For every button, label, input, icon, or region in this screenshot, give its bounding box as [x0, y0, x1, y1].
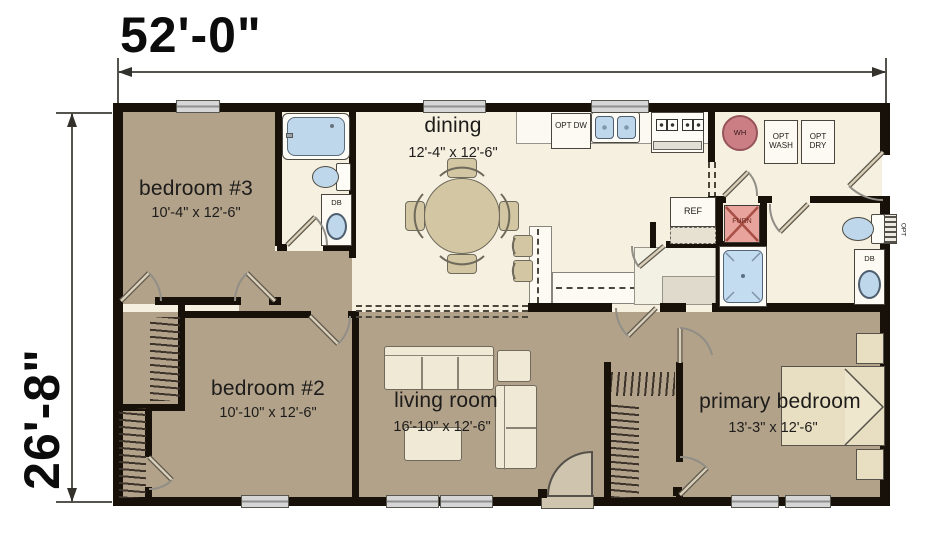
room-label-primary: primary bedroom: [682, 391, 878, 414]
optional-wall-dashed: [708, 162, 716, 198]
window: [386, 495, 439, 508]
width-dim-tick-right: [885, 58, 887, 104]
opt-vertical-label: OPT: [899, 218, 906, 242]
room-label-dining: dining: [368, 115, 538, 138]
dryer-label: OPT DRY: [803, 132, 833, 150]
sofa-back-line: [385, 355, 495, 356]
nightstand: [856, 449, 884, 480]
wall: [650, 222, 656, 248]
vanity: DB: [321, 194, 352, 246]
width-dim-tick-left: [117, 58, 119, 104]
opt-vertical-label-wrap: OPT: [897, 217, 909, 243]
shower-drain: [741, 274, 745, 278]
sink-basin: [858, 270, 881, 299]
closet-hatch: [611, 372, 675, 396]
wall: [604, 362, 611, 499]
wall: [145, 411, 152, 457]
toilet-bowl: [312, 166, 339, 188]
washer: OPT WASH: [764, 120, 798, 164]
wall: [269, 297, 281, 305]
wall: [528, 303, 612, 312]
window: [785, 495, 831, 508]
sink-basin-left: [595, 116, 614, 139]
refrigerator-label: REF: [671, 207, 715, 217]
window: [731, 495, 779, 508]
bar-stool: [513, 260, 533, 282]
dryer: OPT DRY: [801, 120, 835, 164]
height-dim-tick-top: [56, 112, 112, 114]
wall: [155, 297, 241, 305]
height-dimension-line: [71, 113, 73, 503]
room-label-bedroom3: bedroom #3: [106, 178, 286, 201]
width-dimension-line: [118, 71, 886, 73]
window: [440, 495, 493, 508]
bathtub-drain: [330, 124, 334, 128]
closet-hatch: [611, 402, 639, 498]
height-dimension-label: 26'-8": [15, 331, 69, 507]
width-dimension-label: 52'-0": [120, 8, 380, 62]
side-table: [497, 350, 531, 382]
marriage-line: [356, 305, 528, 307]
marriage-line: [356, 316, 528, 318]
burner: [682, 119, 693, 131]
room-size-bedroom2: 10'-10" x 12'-6": [178, 406, 358, 422]
burner: [693, 119, 704, 131]
height-dimension-label-wrap: 26'-8": [14, 330, 72, 506]
height-dim-tick-bottom: [56, 501, 112, 503]
door-pivot: [538, 489, 547, 498]
wall: [708, 112, 715, 162]
washer-label: OPT WASH: [766, 132, 796, 150]
sofa-cushion-line: [421, 357, 423, 389]
bar-counter-dash: [537, 229, 545, 303]
bathtub-basin: [287, 117, 345, 156]
room-size-primary: 13'-3" x 12'-6": [682, 421, 864, 437]
burner: [667, 119, 678, 131]
wall: [660, 303, 686, 312]
refrigerator: REF: [670, 197, 716, 227]
water-heater-label: WH: [724, 129, 756, 138]
room-size-bedroom3: 10'-4" x 12'-6": [106, 206, 286, 222]
wall: [810, 196, 882, 203]
window: [423, 100, 486, 113]
bathtub-faucet: [286, 133, 293, 138]
closet-hatch: [119, 408, 146, 498]
dishwasher-label: OPT DW: [552, 121, 590, 130]
exterior-wall-top: [113, 103, 890, 112]
sink-basin: [326, 213, 347, 240]
wall: [277, 244, 287, 251]
closet-hatch: [150, 317, 180, 401]
marriage-line: [356, 310, 528, 312]
furnace-label: FURN: [724, 218, 760, 226]
bar-stool: [513, 235, 533, 257]
nightstand: [856, 333, 884, 364]
kitchen-nook-counter-inner: [662, 276, 716, 305]
vanity: DB: [854, 249, 885, 305]
range-front: [653, 141, 702, 150]
floor-plan: 52'-0" 26'-8": [0, 0, 940, 550]
toilet-bowl: [842, 217, 874, 241]
front-door-threshold: [541, 495, 594, 509]
vanity-label: DB: [855, 255, 884, 264]
room-label-living: living room: [356, 390, 536, 413]
dining-chair: [499, 201, 519, 231]
room-label-bedroom2: bedroom #2: [178, 378, 358, 401]
water-heater: WH: [722, 115, 758, 151]
vanity-label: DB: [322, 199, 351, 208]
dining-chair: [405, 201, 425, 231]
dining-chair: [447, 254, 477, 274]
room-size-living: 16'-10" x 12'-6": [352, 420, 532, 436]
sofa: [384, 346, 494, 390]
window: [176, 100, 220, 113]
opt-window-hatch: [884, 214, 897, 244]
ref-counter-dashed: [670, 227, 716, 244]
bar-counter-dash2: [556, 287, 636, 289]
door-pivot: [673, 487, 682, 496]
wall: [185, 311, 311, 318]
sink-basin-right: [617, 116, 636, 139]
room-size-dining: 12'-4" x 12'-6": [368, 146, 538, 162]
dining-table: [424, 178, 500, 254]
hallway-floor: [239, 251, 352, 313]
burner: [656, 119, 667, 131]
window: [241, 495, 289, 508]
wall: [758, 196, 772, 203]
exterior-wall-right-upper: [880, 103, 890, 155]
sofa-cushion-line: [457, 357, 459, 389]
dishwasher: OPT DW: [551, 113, 591, 149]
